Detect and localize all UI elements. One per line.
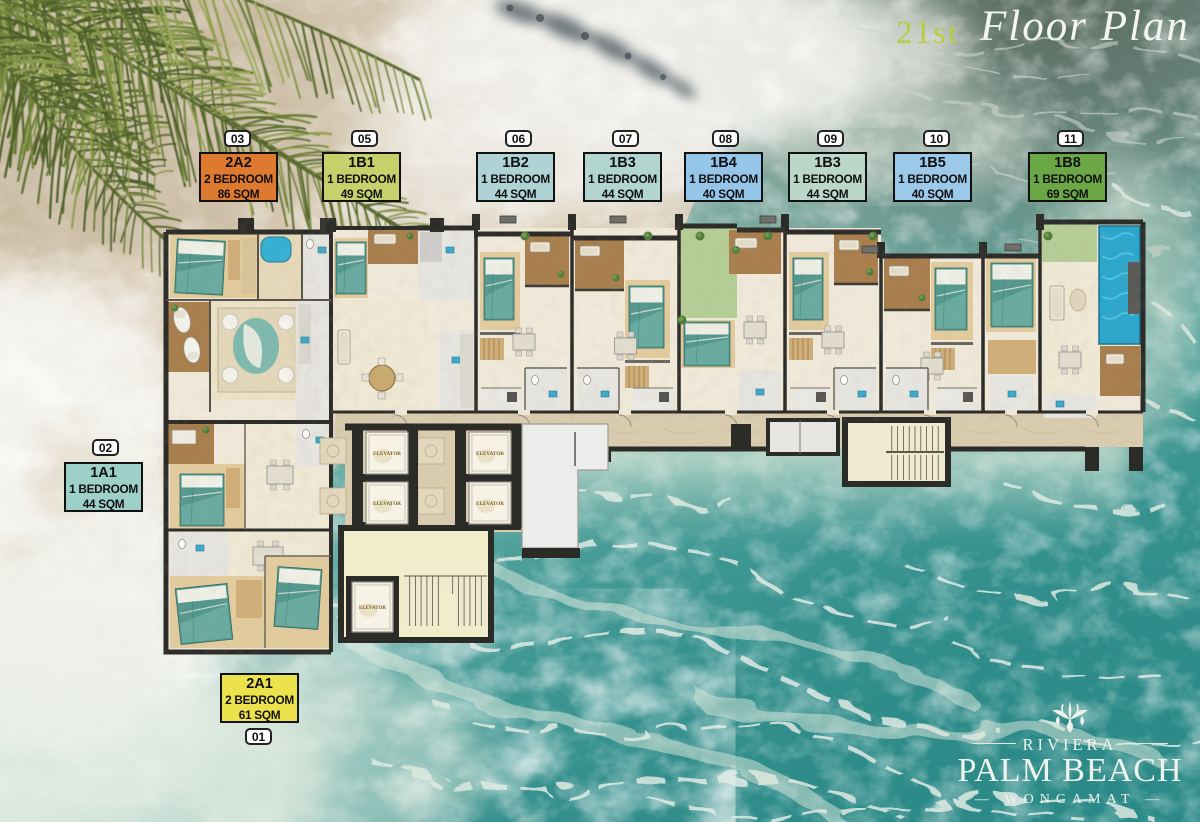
- svg-text:ELEVATOR: ELEVATOR: [373, 451, 401, 457]
- svg-text:ELEVATOR: ELEVATOR: [373, 501, 401, 507]
- svg-text:ELEVATOR: ELEVATOR: [476, 501, 504, 507]
- svg-text:ELEVATOR: ELEVATOR: [476, 451, 504, 457]
- svg-text:ELEVATOR: ELEVATOR: [359, 606, 386, 611]
